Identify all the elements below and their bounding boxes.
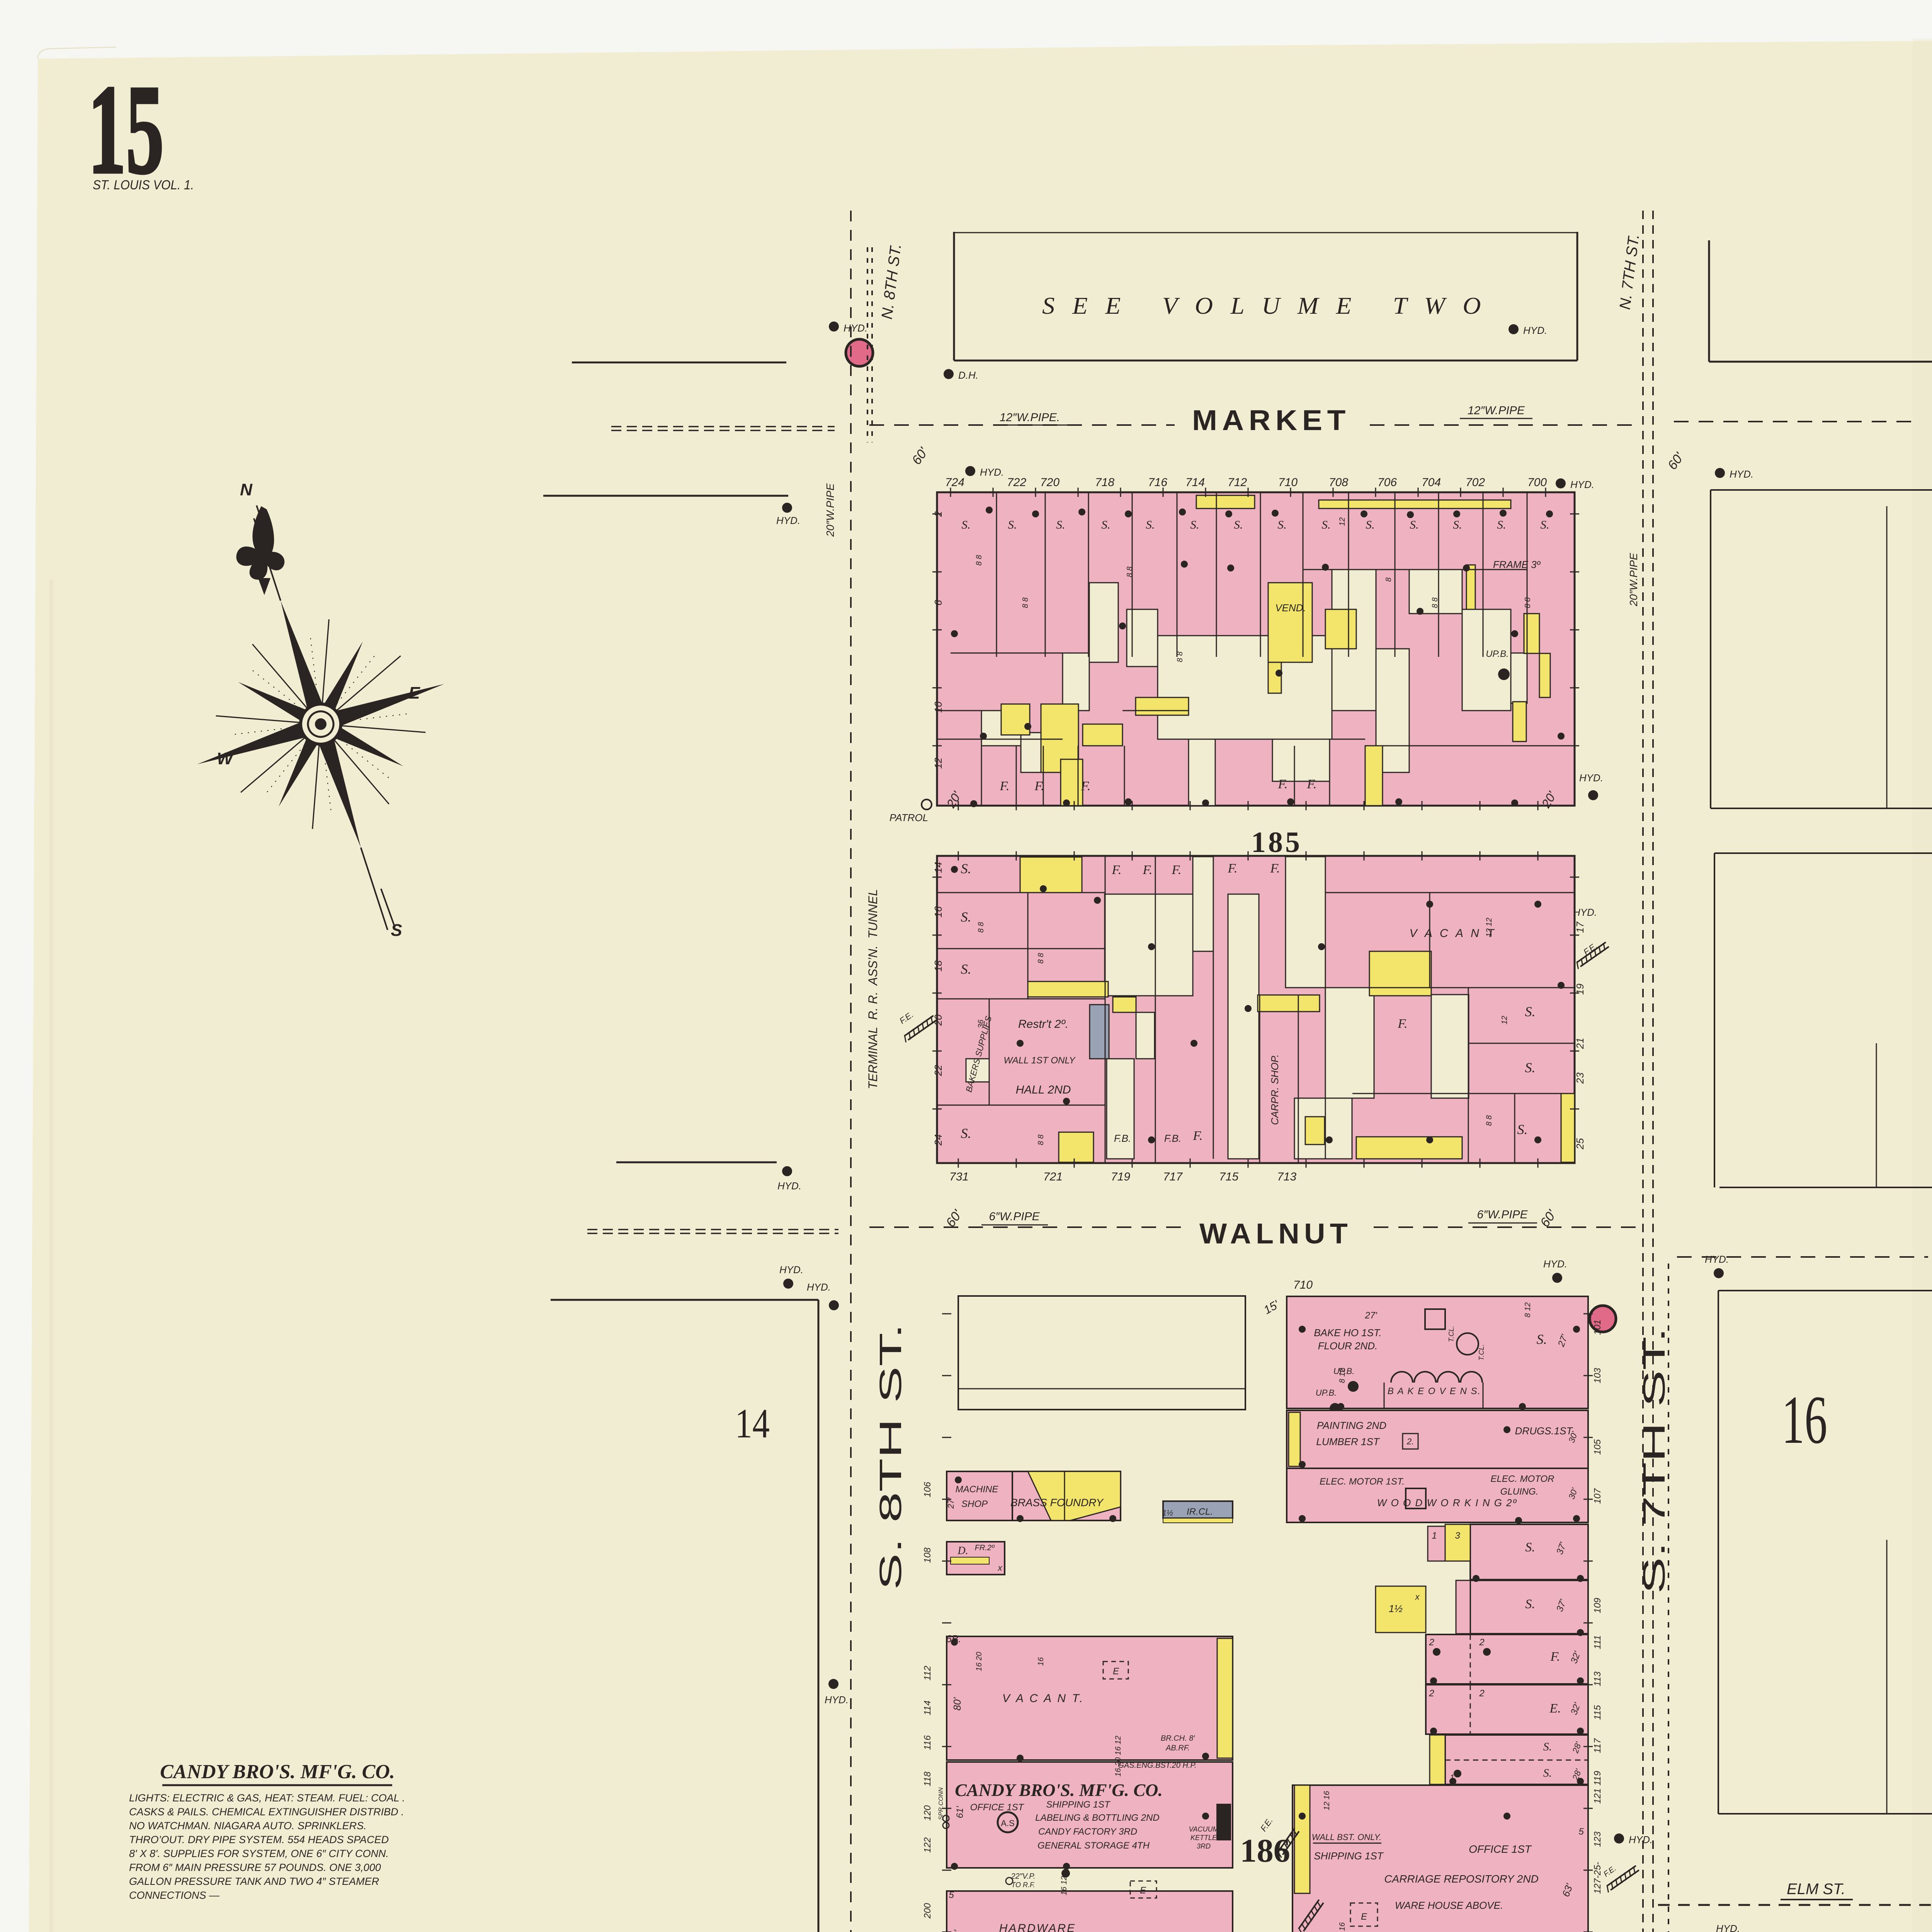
svg-text:5: 5 (949, 1890, 954, 1900)
svg-text:16: 16 (1037, 1657, 1045, 1666)
svg-text:22″V.P.: 22″V.P. (1010, 1872, 1035, 1881)
svg-text:23: 23 (1574, 1072, 1586, 1084)
svg-text:714: 714 (1185, 476, 1205, 489)
svg-text:DRUGS.1ST: DRUGS.1ST (1515, 1425, 1573, 1437)
svg-text:S.: S. (1497, 518, 1506, 531)
svg-text:W O O D W O R K I N G 2º: W O O D W O R K I N G 2º (1377, 1497, 1517, 1509)
svg-text:112: 112 (922, 1666, 933, 1680)
svg-text:710: 710 (1293, 1279, 1313, 1291)
svg-text:S.: S. (961, 861, 971, 876)
svg-text:12: 12 (1338, 517, 1347, 526)
svg-text:1½: 1½ (1389, 1603, 1403, 1614)
svg-text:B A K E O V E N S.: B A K E O V E N S. (1388, 1386, 1481, 1396)
svg-text:SPR.CONN: SPR.CONN (938, 1787, 944, 1820)
svg-text:N: N (240, 480, 253, 499)
svg-text:8 8: 8 8 (1126, 566, 1134, 577)
svg-text:12″W.PIPE: 12″W.PIPE (1468, 404, 1525, 417)
svg-text:12: 12 (932, 757, 944, 769)
svg-text:S.: S. (1146, 518, 1155, 531)
svg-text:12: 12 (1500, 1016, 1509, 1024)
svg-text:118: 118 (922, 1771, 933, 1786)
svg-text:CANDY BRO'S. MF'G. CO.: CANDY BRO'S. MF'G. CO. (160, 1761, 395, 1783)
svg-text:16 20 16 12: 16 20 16 12 (1114, 1736, 1122, 1777)
svg-text:HYD.: HYD. (777, 1180, 801, 1192)
svg-text:GAS.ENG.BST.20 H.P.: GAS.ENG.BST.20 H.P. (1118, 1761, 1196, 1770)
svg-text:CASKS & PAILS. CHEMICAL EXTING: CASKS & PAILS. CHEMICAL EXTINGUISHER DIS… (129, 1806, 404, 1818)
svg-text:T.CL.: T.CL. (1478, 1344, 1485, 1361)
svg-text:THRO’OUT. DRY PIPE SYSTEM. 55: THRO’OUT. DRY PIPE SYSTEM. 554 HEADS SPA… (129, 1834, 389, 1845)
svg-text:S.: S. (1277, 518, 1286, 531)
svg-text:F.: F. (1081, 779, 1091, 793)
svg-text:OFFICE 1ST: OFFICE 1ST (970, 1802, 1025, 1813)
svg-text:Restr't 2º.: Restr't 2º. (1018, 1018, 1068, 1031)
svg-text:5: 5 (1578, 1827, 1584, 1837)
svg-text:713: 713 (1277, 1170, 1296, 1183)
svg-text:HYD.: HYD. (776, 515, 800, 526)
svg-text:27': 27' (1364, 1310, 1378, 1321)
svg-text:S.: S. (961, 1126, 971, 1141)
svg-text:FROM 6″ MAIN PRESSURE 57 POUN: FROM 6″ MAIN PRESSURE 57 POUNDS. ONE 3,0… (129, 1862, 381, 1873)
svg-text:HYD.: HYD. (1570, 479, 1594, 490)
svg-text:AB.RF.: AB.RF. (1165, 1744, 1190, 1752)
svg-text:8 8: 8 8 (1485, 1115, 1493, 1126)
svg-text:8 12: 8 12 (1338, 1368, 1347, 1383)
svg-text:S.: S. (1190, 518, 1199, 531)
svg-text:S.: S. (1537, 1332, 1547, 1347)
svg-text:106: 106 (922, 1481, 933, 1497)
svg-text:710: 710 (1278, 476, 1298, 489)
svg-text:OFFICE 1ST: OFFICE 1ST (1469, 1843, 1532, 1855)
svg-text:2: 2 (1479, 1688, 1484, 1699)
svg-text:S E E V O L U M E T W O: S E E V O L U M E T W O (1042, 293, 1486, 319)
svg-text:107: 107 (1592, 1488, 1603, 1504)
svg-text:36: 36 (977, 1019, 985, 1028)
svg-text:TERMINAL R. R. ASS’N. TUNNE: TERMINAL R. R. ASS’N. TUNNEL (866, 889, 880, 1089)
svg-text:108: 108 (922, 1547, 933, 1563)
svg-text:PAINTING 2ND: PAINTING 2ND (1317, 1420, 1386, 1431)
svg-text:WARE HOUSE ABOVE.: WARE HOUSE ABOVE. (1395, 1900, 1503, 1911)
svg-text:3: 3 (1455, 1531, 1460, 1541)
svg-text:FLOUR 2ND.: FLOUR 2ND. (1318, 1340, 1378, 1352)
svg-text:S.: S. (1056, 518, 1065, 531)
svg-text:HYD.: HYD. (779, 1264, 803, 1276)
svg-text:HYD.: HYD. (1629, 1834, 1653, 1845)
svg-text:716: 716 (1148, 476, 1167, 489)
svg-text:708: 708 (1329, 476, 1348, 489)
svg-text:706: 706 (1378, 476, 1397, 489)
svg-text:CONNECTIONS —: CONNECTIONS — (129, 1889, 220, 1901)
svg-text:101: 101 (1592, 1320, 1603, 1335)
svg-text:14: 14 (735, 1401, 770, 1447)
svg-text:12″W.PIPE.: 12″W.PIPE. (1000, 411, 1060, 424)
svg-text:D.H.: D.H. (958, 369, 978, 381)
svg-text:S.: S. (961, 961, 971, 977)
svg-text:WALL BST. ONLY.: WALL BST. ONLY. (1312, 1832, 1381, 1842)
svg-text:12 16: 12 16 (1338, 1922, 1347, 1932)
svg-text:1: 1 (1432, 1531, 1437, 1541)
svg-text:F.: F. (1000, 779, 1010, 793)
svg-text:116: 116 (922, 1735, 933, 1750)
svg-text:16: 16 (1782, 1381, 1827, 1458)
svg-text:200: 200 (922, 1903, 933, 1919)
svg-text:712: 712 (1228, 476, 1247, 489)
svg-text:W: W (217, 749, 234, 768)
svg-text:S.: S. (961, 909, 971, 925)
svg-text:HYD.: HYD. (1523, 325, 1547, 336)
svg-text:S.: S. (1525, 1540, 1535, 1554)
svg-text:115: 115 (1592, 1705, 1603, 1720)
svg-text:17: 17 (1574, 921, 1586, 933)
svg-text:HALL 2ND: HALL 2ND (1016, 1083, 1071, 1096)
svg-text:BAKE HO 1ST.: BAKE HO 1ST. (1314, 1327, 1381, 1338)
svg-text:E: E (1113, 1666, 1119, 1677)
svg-text:CANDY FACTORY 3RD: CANDY FACTORY 3RD (1038, 1827, 1137, 1837)
svg-text:185: 185 (1251, 826, 1302, 859)
svg-text:S.: S. (1410, 518, 1418, 531)
svg-text:LUMBER 1ST: LUMBER 1ST (1316, 1436, 1380, 1447)
svg-text:GALLON PRESSURE TANK AND T: GALLON PRESSURE TANK AND TWO 4″ STEAMER (129, 1876, 379, 1887)
svg-text:MACHINE: MACHINE (956, 1484, 999, 1495)
svg-text:F.: F. (1112, 863, 1122, 877)
svg-text:F.B.: F.B. (1164, 1133, 1181, 1144)
svg-text:NO WATCHMAN. NIAGARA AUTO. SP: NO WATCHMAN. NIAGARA AUTO. SPRINKLERS. (129, 1820, 367, 1832)
svg-text:GLUING.: GLUING. (1500, 1486, 1539, 1497)
svg-text:F.: F. (1270, 861, 1280, 876)
svg-text:SHIPPING 1ST: SHIPPING 1ST (1046, 1799, 1111, 1810)
svg-text:PATROL: PATROL (889, 812, 928, 823)
svg-text:S. 7TH ST.: S. 7TH ST. (1637, 1327, 1671, 1594)
svg-text:F.: F. (1278, 777, 1288, 791)
svg-text:FRAME 3º: FRAME 3º (1493, 559, 1541, 570)
svg-text:KETTLE: KETTLE (1190, 1834, 1217, 1842)
svg-text:F.: F. (1307, 777, 1317, 791)
svg-text:721: 721 (1043, 1170, 1063, 1183)
svg-text:SHOP: SHOP (961, 1499, 988, 1509)
svg-text:F.: F. (1143, 863, 1153, 877)
svg-text:20″W.PIPE: 20″W.PIPE (1628, 553, 1639, 607)
svg-text:E: E (1140, 1885, 1146, 1896)
svg-text:121: 121 (1592, 1788, 1603, 1804)
svg-text:12 16: 12 16 (1323, 1791, 1331, 1810)
svg-text:724: 724 (945, 476, 964, 489)
svg-text:6″W.PIPE: 6″W.PIPE (989, 1210, 1040, 1223)
svg-text:109: 109 (1592, 1598, 1603, 1613)
svg-text:F.: F. (1193, 1129, 1203, 1143)
svg-text:14: 14 (932, 862, 944, 873)
svg-text:122: 122 (922, 1837, 933, 1853)
svg-text:8: 8 (1384, 577, 1393, 582)
svg-text:HYD.: HYD. (1543, 1258, 1567, 1270)
svg-text:S.: S. (1525, 1004, 1536, 1019)
svg-text:E: E (408, 684, 420, 702)
svg-text:114: 114 (922, 1701, 933, 1715)
svg-text:S.: S. (1543, 1740, 1552, 1753)
svg-text:F.: F. (1398, 1017, 1408, 1031)
svg-text:731: 731 (949, 1170, 969, 1183)
svg-text:HYD.: HYD. (807, 1281, 831, 1293)
svg-text:HYD.: HYD. (980, 466, 1004, 478)
svg-text:S.: S. (1234, 518, 1243, 531)
svg-text:x: x (998, 1563, 1003, 1573)
svg-text:D.: D. (957, 1545, 968, 1557)
svg-text:HYD.: HYD. (1705, 1253, 1729, 1265)
svg-text:700: 700 (1527, 476, 1547, 489)
svg-text:TO R.F.: TO R.F. (1011, 1881, 1035, 1889)
svg-text:F.: F. (1034, 779, 1044, 793)
svg-text:2: 2 (1429, 1637, 1434, 1648)
svg-text:S.: S. (1366, 518, 1374, 531)
svg-text:HYD.: HYD. (1730, 468, 1753, 480)
svg-text:HARDWARE: HARDWARE (999, 1922, 1076, 1932)
svg-text:8 8: 8 8 (977, 922, 985, 933)
svg-text:1½: 1½ (1162, 1509, 1173, 1517)
svg-text:ELEC. MOTOR 1ST.: ELEC. MOTOR 1ST. (1320, 1476, 1405, 1487)
svg-text:F.: F. (1172, 863, 1182, 877)
svg-text:8 8: 8 8 (975, 555, 983, 566)
svg-text:16 12: 16 12 (1060, 1876, 1068, 1895)
svg-text:3RD: 3RD (1197, 1842, 1211, 1850)
svg-text:715: 715 (1219, 1170, 1238, 1183)
svg-text:16 20: 16 20 (975, 1652, 983, 1671)
svg-text:MARKET: MARKET (1192, 404, 1350, 436)
svg-text:F.: F. (1228, 861, 1238, 876)
svg-text:704: 704 (1422, 476, 1441, 489)
svg-text:CANDY BRO'S. MF'G. CO.: CANDY BRO'S. MF'G. CO. (955, 1780, 1163, 1800)
svg-text:HYD.: HYD. (825, 1694, 849, 1706)
svg-text:IR.CL.: IR.CL. (1187, 1507, 1213, 1517)
svg-text:V A C A N T.: V A C A N T. (1002, 1692, 1085, 1705)
svg-text:25: 25 (1574, 1138, 1586, 1150)
svg-text:S.: S. (1540, 518, 1549, 531)
svg-text:8 8: 8 8 (1176, 651, 1184, 662)
svg-text:8 8: 8 8 (1037, 953, 1045, 964)
svg-text:2: 2 (1479, 1637, 1484, 1648)
svg-text:S.: S. (1101, 518, 1110, 531)
svg-text:UP.B.: UP.B. (1316, 1388, 1337, 1398)
svg-text:18: 18 (932, 960, 944, 971)
svg-text:717: 717 (1163, 1170, 1183, 1183)
svg-text:BRASS FOUNDRY: BRASS FOUNDRY (1010, 1497, 1104, 1509)
svg-text:720: 720 (1040, 476, 1060, 489)
svg-text:20: 20 (932, 1014, 944, 1026)
svg-text:CARRIAGE REPOSITORY 2ND: CARRIAGE REPOSITORY 2ND (1384, 1873, 1538, 1885)
svg-text:22: 22 (932, 1065, 944, 1076)
svg-text:8 8: 8 8 (1431, 597, 1439, 608)
svg-text:61': 61' (955, 1806, 965, 1818)
svg-text:120: 120 (922, 1805, 933, 1821)
svg-text:10: 10 (932, 701, 944, 713)
svg-text:WALNUT: WALNUT (1199, 1218, 1352, 1250)
svg-text:127-25-: 127-25- (1592, 1862, 1603, 1894)
svg-text:S.: S. (1008, 518, 1017, 531)
svg-text:719: 719 (1111, 1170, 1130, 1183)
svg-text:HYD.: HYD. (844, 322, 867, 334)
svg-text:LABELING & BOTTLING 2ND: LABELING & BOTTLING 2ND (1035, 1813, 1159, 1823)
svg-text:E.: E. (1549, 1701, 1561, 1716)
svg-text:6″W.PIPE: 6″W.PIPE (1477, 1208, 1528, 1221)
svg-text:FR.2º: FR.2º (975, 1544, 995, 1552)
svg-text:80': 80' (951, 1697, 963, 1711)
svg-text:6: 6 (932, 600, 944, 605)
svg-text:UP.B.: UP.B. (1486, 649, 1509, 659)
svg-text:8 8: 8 8 (1021, 597, 1030, 608)
svg-text:8 8: 8 8 (1524, 597, 1532, 608)
svg-text:HYD.: HYD. (1716, 1923, 1740, 1932)
svg-text:T.CL.: T.CL. (1447, 1326, 1455, 1342)
svg-text:2: 2 (1429, 1688, 1434, 1699)
svg-text:2.: 2. (1406, 1437, 1414, 1446)
svg-text:8' X 8'. SUPPLIES FOR SYSTEM,: 8' X 8'. SUPPLIES FOR SYSTEM, ONE 6″ CIT… (129, 1848, 389, 1859)
svg-text:S: S (391, 921, 402, 940)
svg-text:HYD.: HYD. (1579, 772, 1603, 784)
svg-text:CARPR. SHOP.: CARPR. SHOP. (1269, 1054, 1281, 1125)
svg-text:S.: S. (961, 518, 970, 531)
svg-text:113: 113 (1592, 1671, 1603, 1686)
svg-text:103: 103 (1592, 1367, 1603, 1383)
svg-text:21: 21 (1574, 1038, 1586, 1049)
svg-text:S.: S. (1453, 518, 1462, 531)
svg-text:SHIPPING 1ST: SHIPPING 1ST (1314, 1850, 1384, 1862)
svg-text:S. 8TH ST.: S. 8TH ST. (873, 1323, 908, 1590)
svg-text:119: 119 (1592, 1771, 1603, 1786)
svg-text:BR.CH. 8′: BR.CH. 8′ (1161, 1734, 1195, 1743)
svg-text:24: 24 (932, 1134, 944, 1146)
svg-text:HYD.: HYD. (1573, 906, 1597, 918)
svg-text:VEND.: VEND. (1275, 602, 1306, 614)
svg-text:ELM ST.: ELM ST. (1787, 1881, 1845, 1898)
svg-text:718: 718 (1095, 476, 1114, 489)
svg-text:A.S: A.S (1001, 1818, 1014, 1828)
svg-text:105: 105 (1592, 1439, 1603, 1455)
svg-text:8 8: 8 8 (1037, 1134, 1045, 1145)
svg-text:S.: S. (1525, 1060, 1536, 1075)
svg-text:GENERAL STORAGE 4TH: GENERAL STORAGE 4TH (1037, 1840, 1150, 1851)
svg-text:ELEC. MOTOR: ELEC. MOTOR (1491, 1474, 1554, 1484)
svg-text:16: 16 (932, 906, 944, 917)
svg-text:WALL 1ST ONLY: WALL 1ST ONLY (1004, 1055, 1076, 1066)
svg-text:S.: S. (1525, 1597, 1535, 1611)
svg-text:722: 722 (1007, 476, 1026, 489)
svg-text:V A C A N T: V A C A N T (1410, 927, 1497, 940)
svg-text:117: 117 (1592, 1738, 1603, 1753)
svg-text:12 12: 12 12 (1485, 918, 1493, 937)
svg-text:x: x (1415, 1592, 1420, 1602)
svg-text:123: 123 (1592, 1831, 1603, 1847)
svg-text:F.: F. (1550, 1650, 1560, 1664)
svg-text:F.B.: F.B. (1114, 1133, 1131, 1144)
svg-text:E: E (1361, 1912, 1367, 1922)
svg-text:S.: S. (1543, 1767, 1552, 1779)
svg-text:702: 702 (1466, 476, 1485, 489)
svg-text:ST. LOUIS VOL. 1.: ST. LOUIS VOL. 1. (93, 178, 194, 192)
svg-text:S.: S. (1517, 1122, 1528, 1137)
svg-text:LIGHTS: ELECTRIC & GAS, HEAT:: LIGHTS: ELECTRIC & GAS, HEAT: STEAM. FUE… (129, 1792, 405, 1804)
svg-text:111: 111 (1592, 1635, 1603, 1649)
svg-text:20″W.PIPE: 20″W.PIPE (824, 483, 836, 537)
svg-text:8 12: 8 12 (1524, 1303, 1532, 1318)
svg-text:S.: S. (1321, 518, 1330, 531)
svg-text:VACUUM: VACUUM (1189, 1825, 1218, 1833)
